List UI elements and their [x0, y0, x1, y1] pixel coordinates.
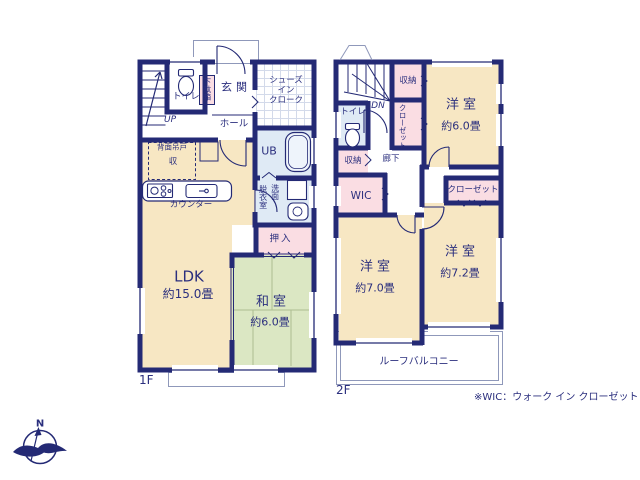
- label-roof-balcony: ルーフバルコニー: [379, 356, 458, 368]
- terrace-step-outline: [168, 372, 285, 387]
- label-bedroom-c: 洋室: [445, 246, 479, 261]
- label-bedroom-c-size: 約7.2畳: [440, 268, 480, 281]
- label-japanese-room-size: 約6.0畳: [250, 317, 290, 330]
- label-toilet-1f: トイレ: [172, 92, 199, 102]
- label-bedroom-a: 洋室: [446, 99, 480, 114]
- label-bedroom-a-size: 約6.0畳: [441, 121, 481, 134]
- room-ldk: [140, 140, 232, 370]
- label-stairs-down: DN: [371, 101, 385, 111]
- label-japanese-room: 和室: [256, 296, 290, 311]
- shoes-closet-line3: クローク: [269, 96, 303, 106]
- label-stairs-up: UP: [164, 115, 176, 125]
- label-floor-2: 2F: [336, 384, 351, 398]
- label-rear-cupboard: 背面吊戸: [157, 144, 187, 153]
- label-toilet-2f: トイレ: [340, 108, 366, 118]
- label-corridor: 廊下: [382, 155, 399, 165]
- label-closet-small: クローゼット: [397, 104, 407, 148]
- label-ldk: LDK: [174, 268, 204, 285]
- room-bedroom-70: [339, 215, 422, 343]
- label-washroom: 洗面: [270, 184, 279, 200]
- label-oshiire: 押入: [269, 235, 292, 246]
- label-unit-bath: UB: [261, 146, 277, 159]
- room-japanese: [232, 255, 314, 370]
- room-bedroom-6: [424, 62, 501, 167]
- compass-north-label: N: [36, 418, 44, 430]
- label-entrance: 玄関: [221, 82, 251, 95]
- label-wic: WIC: [351, 190, 372, 202]
- label-bedroom-b-size: 約7.0畳: [355, 283, 395, 296]
- label-shoe-box: 下駄箱: [202, 78, 211, 101]
- label-storage-kitchen: 収: [169, 158, 178, 168]
- label-ldk-size: 約15.0畳: [163, 288, 214, 302]
- label-bedroom-b: 洋室: [360, 261, 394, 276]
- label-closet-right: クローゼット: [447, 186, 498, 196]
- label-floor-1: 1F: [139, 374, 154, 388]
- room-bedroom-72: [424, 203, 501, 327]
- label-shoes-closet: シューズ イン クローク: [269, 76, 303, 105]
- label-storage-top: 収納: [399, 77, 416, 87]
- entrance-porch-outline: [193, 40, 259, 64]
- label-hall: ホール: [220, 120, 249, 131]
- floorplan-page: トイレ 下駄箱 玄関 シューズ イン クローク ホール UP 背面吊戸 収 カウ…: [0, 0, 640, 480]
- label-storage-left: 収納: [344, 157, 361, 167]
- footnote-wic: ※WIC：ウォーク イン クローゼット: [474, 392, 639, 404]
- label-dressing-room: 脱衣室: [258, 185, 267, 209]
- compass-icon: [13, 427, 67, 464]
- plan-linework: [0, 0, 640, 480]
- label-counter: カウンター: [170, 201, 213, 211]
